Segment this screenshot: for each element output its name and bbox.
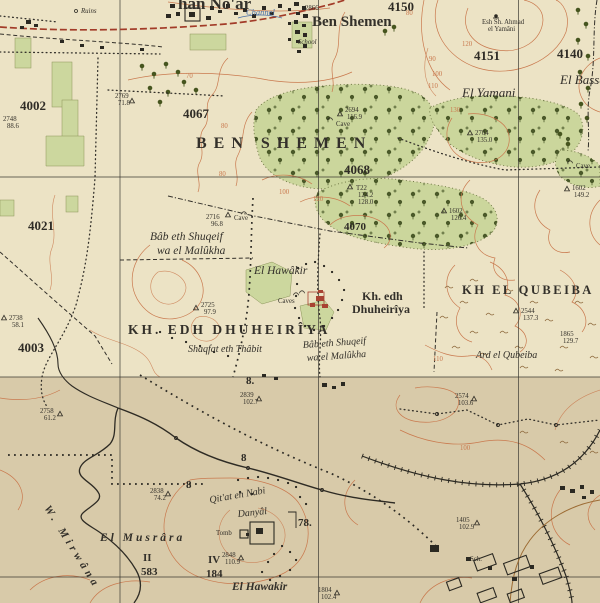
spot-2738-h: 58.1 <box>12 322 24 329</box>
spot-2866: 2866 <box>305 5 319 12</box>
label-bab-north-2: wa el Malûkha <box>157 245 226 257</box>
spot-2838-h: 74.2 <box>154 495 166 502</box>
label-caves: Caves <box>278 298 295 305</box>
contour-100a: 100 <box>432 71 443 78</box>
block-4002: 4002 <box>20 98 46 113</box>
label-numeral-iv: IV <box>208 554 220 566</box>
survey-map-sheet: han No'ar Ben Shemen Channel Ruins Schoo… <box>0 0 600 603</box>
spot-2574-v: 2574 <box>455 393 469 400</box>
label-kh-el-qubeiba: KH EL QUBEIBA <box>462 283 594 297</box>
block-4070: 4070 <box>344 221 367 233</box>
label-tomb: Tomb <box>216 530 232 537</box>
label-ben-shemen-village: Ben Shemen <box>312 14 392 30</box>
spot-2838-v: 2838 <box>150 488 164 495</box>
contour-110a: 110 <box>428 83 439 90</box>
spot-2738-v: 2738 <box>9 315 23 322</box>
spot-2544-v: 2544 <box>521 308 535 315</box>
spot-t22-m: 124.2 <box>358 192 374 199</box>
contour-100b: 100 <box>279 189 290 196</box>
label-el-hawakir-north: El Hawâkir <box>253 265 308 277</box>
block-4003: 4003 <box>18 340 45 355</box>
map-canvas: han No'ar Ben Shemen Channel Ruins Schoo… <box>0 0 600 603</box>
label-583: 583 <box>141 566 158 578</box>
spot-1405-h: 102.9 <box>459 524 475 531</box>
spot-1804-h: 102.4 <box>321 594 337 601</box>
spot-2694-h: 116.9 <box>347 114 363 121</box>
label-ard-el-qubeiba: Ard el Qubeiba <box>475 350 537 361</box>
spot-2839-v: 2839 <box>240 392 254 399</box>
spot-1608-v: 1602 <box>572 185 586 192</box>
label-184: 184 <box>206 568 223 580</box>
spot-1804-v: 1804 <box>318 587 332 594</box>
block-4151: 4151 <box>474 48 500 63</box>
label-bab-north-1: Bâb eth Shuqeif <box>150 231 225 243</box>
block-4021: 4021 <box>28 218 54 233</box>
spot-2725-v: 2725 <box>201 302 215 309</box>
label-ruins: Ruins <box>80 8 97 15</box>
spot-2716-h: 96.8 <box>211 221 223 228</box>
label-kh-edh-2: Dhuheirîya <box>352 302 410 316</box>
block-4068: 4068 <box>344 162 371 177</box>
spot-1608-h: 149.2 <box>574 192 590 199</box>
label-cave-d: Cave <box>576 163 590 170</box>
contour-100c: 100 <box>460 445 471 452</box>
spot-2769-v: 2769 <box>115 93 129 100</box>
label-school: School <box>298 39 317 46</box>
spot-2574-h: 103.6 <box>458 400 474 407</box>
spot-2544-h: 137.3 <box>523 315 539 322</box>
label-sheikh-1: Esh Sh. Ahmad <box>482 19 525 26</box>
label-numeral-ii: II <box>143 552 152 564</box>
label-el-yamani: El Yamani <box>461 85 516 100</box>
contour-80c: 80 <box>219 171 226 178</box>
spot-2769-h: 71.8 <box>118 100 130 107</box>
contour-110b: 110 <box>433 356 444 363</box>
label-sch: Sch. <box>470 556 482 563</box>
label-8b: 8 <box>241 452 247 464</box>
contour-120a: 120 <box>462 41 473 48</box>
spot-2848-h: 110.9 <box>225 559 241 566</box>
contour-120b: 120 <box>313 196 324 203</box>
label-channel: Channel <box>246 7 275 17</box>
spot-2758-v: 2758 <box>40 408 54 415</box>
spot-1865-v: 1865 <box>560 331 574 338</box>
spot-1602-v: 1602 <box>449 208 463 215</box>
contour-90: 90 <box>429 56 436 63</box>
label-shaqfat: Shaqfat eth Thâbit <box>188 344 262 355</box>
spot-1865-h: 129.7 <box>563 338 579 345</box>
contour-80b: 80 <box>221 123 228 130</box>
label-kfar-hanoar: han No'ar <box>178 0 252 13</box>
spot-2704-h: 135.0 <box>477 137 493 144</box>
label-ben-shemen-forest: BEN SHEMEN <box>196 135 372 152</box>
spot-t22-h: 128.0 <box>358 199 374 206</box>
spot-2748-v: 2748 <box>3 116 17 123</box>
label-78: 78. <box>298 517 312 529</box>
spot-2839-h: 102.7 <box>243 399 259 406</box>
spot-2704-v: 2704 <box>475 130 489 137</box>
label-8c: 8 <box>186 479 192 491</box>
label-8a: 8. <box>246 375 255 387</box>
label-el-bassa: El Bassa <box>559 72 600 87</box>
spot-2725-h: 97.9 <box>204 309 216 316</box>
label-el-hawakir-south: El Hawakir <box>231 581 288 593</box>
spot-2748-h: 88.6 <box>7 123 19 130</box>
label-cave-a: Cave <box>336 121 350 128</box>
label-kh-edh-1: Kh. edh <box>362 289 403 303</box>
label-el-musrara: El Musrâra <box>99 532 185 544</box>
label-sheikh-2: el Yamâni <box>488 26 515 33</box>
spot-2848-v: 2848 <box>222 552 236 559</box>
spot-t22-v: T22 <box>356 185 368 192</box>
spot-2758-h: 61.2 <box>44 415 56 422</box>
spot-1405-v: 1405 <box>456 517 470 524</box>
block-4140: 4140 <box>557 46 583 61</box>
label-cave-b: Cave <box>234 215 248 222</box>
contour-130: 130 <box>450 107 461 114</box>
block-4067: 4067 <box>183 106 210 121</box>
contour-80a: 80 <box>406 10 413 17</box>
spot-2716-v: 2716 <box>206 214 220 221</box>
spot-1602-h: 126.4 <box>451 215 467 222</box>
contour-70: 70 <box>186 73 193 80</box>
spot-2694-v: 2694 <box>345 107 359 114</box>
label-kh-edh-big: KH. EDH DHUHEIRÎYA <box>128 322 330 337</box>
